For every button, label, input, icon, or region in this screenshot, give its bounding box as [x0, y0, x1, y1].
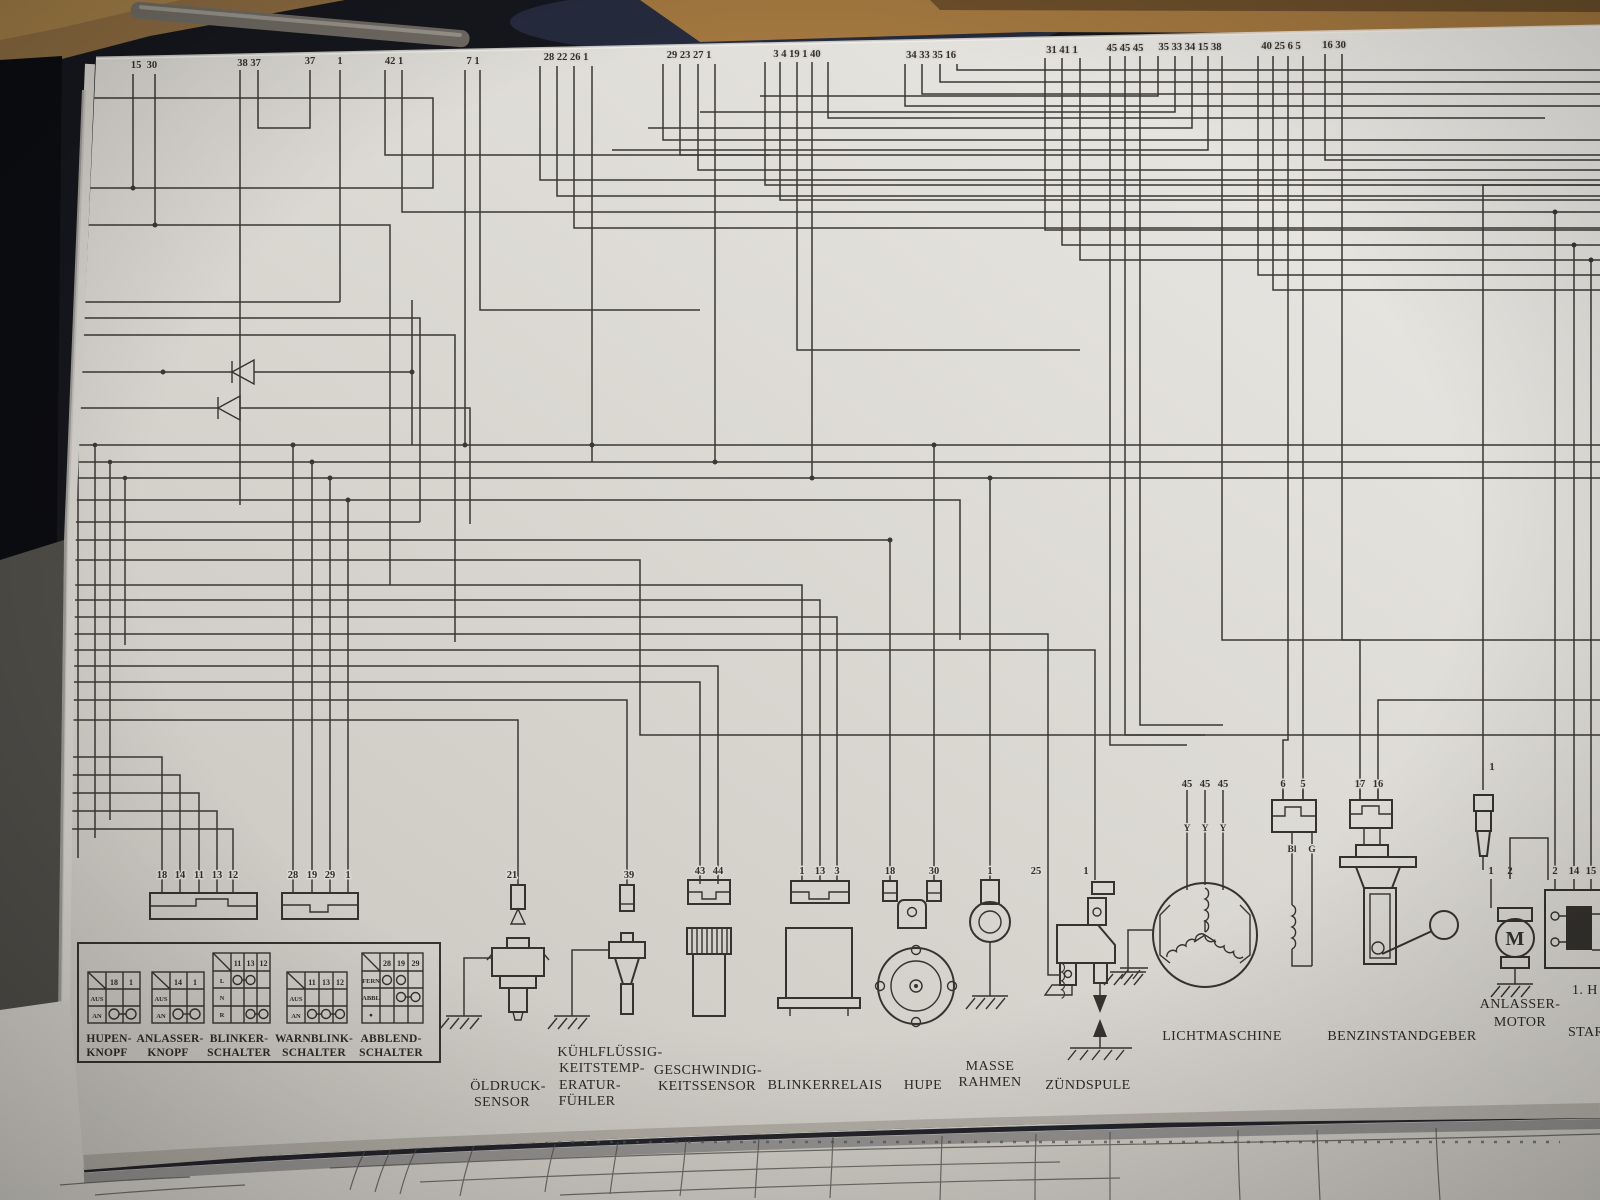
- scene: 15 30 38 37 37 1 42 1 7 1 28 22 26 1 29 …: [0, 0, 1600, 1200]
- photo-of-wiring-diagram: 15 30 38 37 37 1 42 1 7 1 28 22 26 1 29 …: [0, 0, 1600, 1200]
- photo-vignette: [0, 0, 1600, 1200]
